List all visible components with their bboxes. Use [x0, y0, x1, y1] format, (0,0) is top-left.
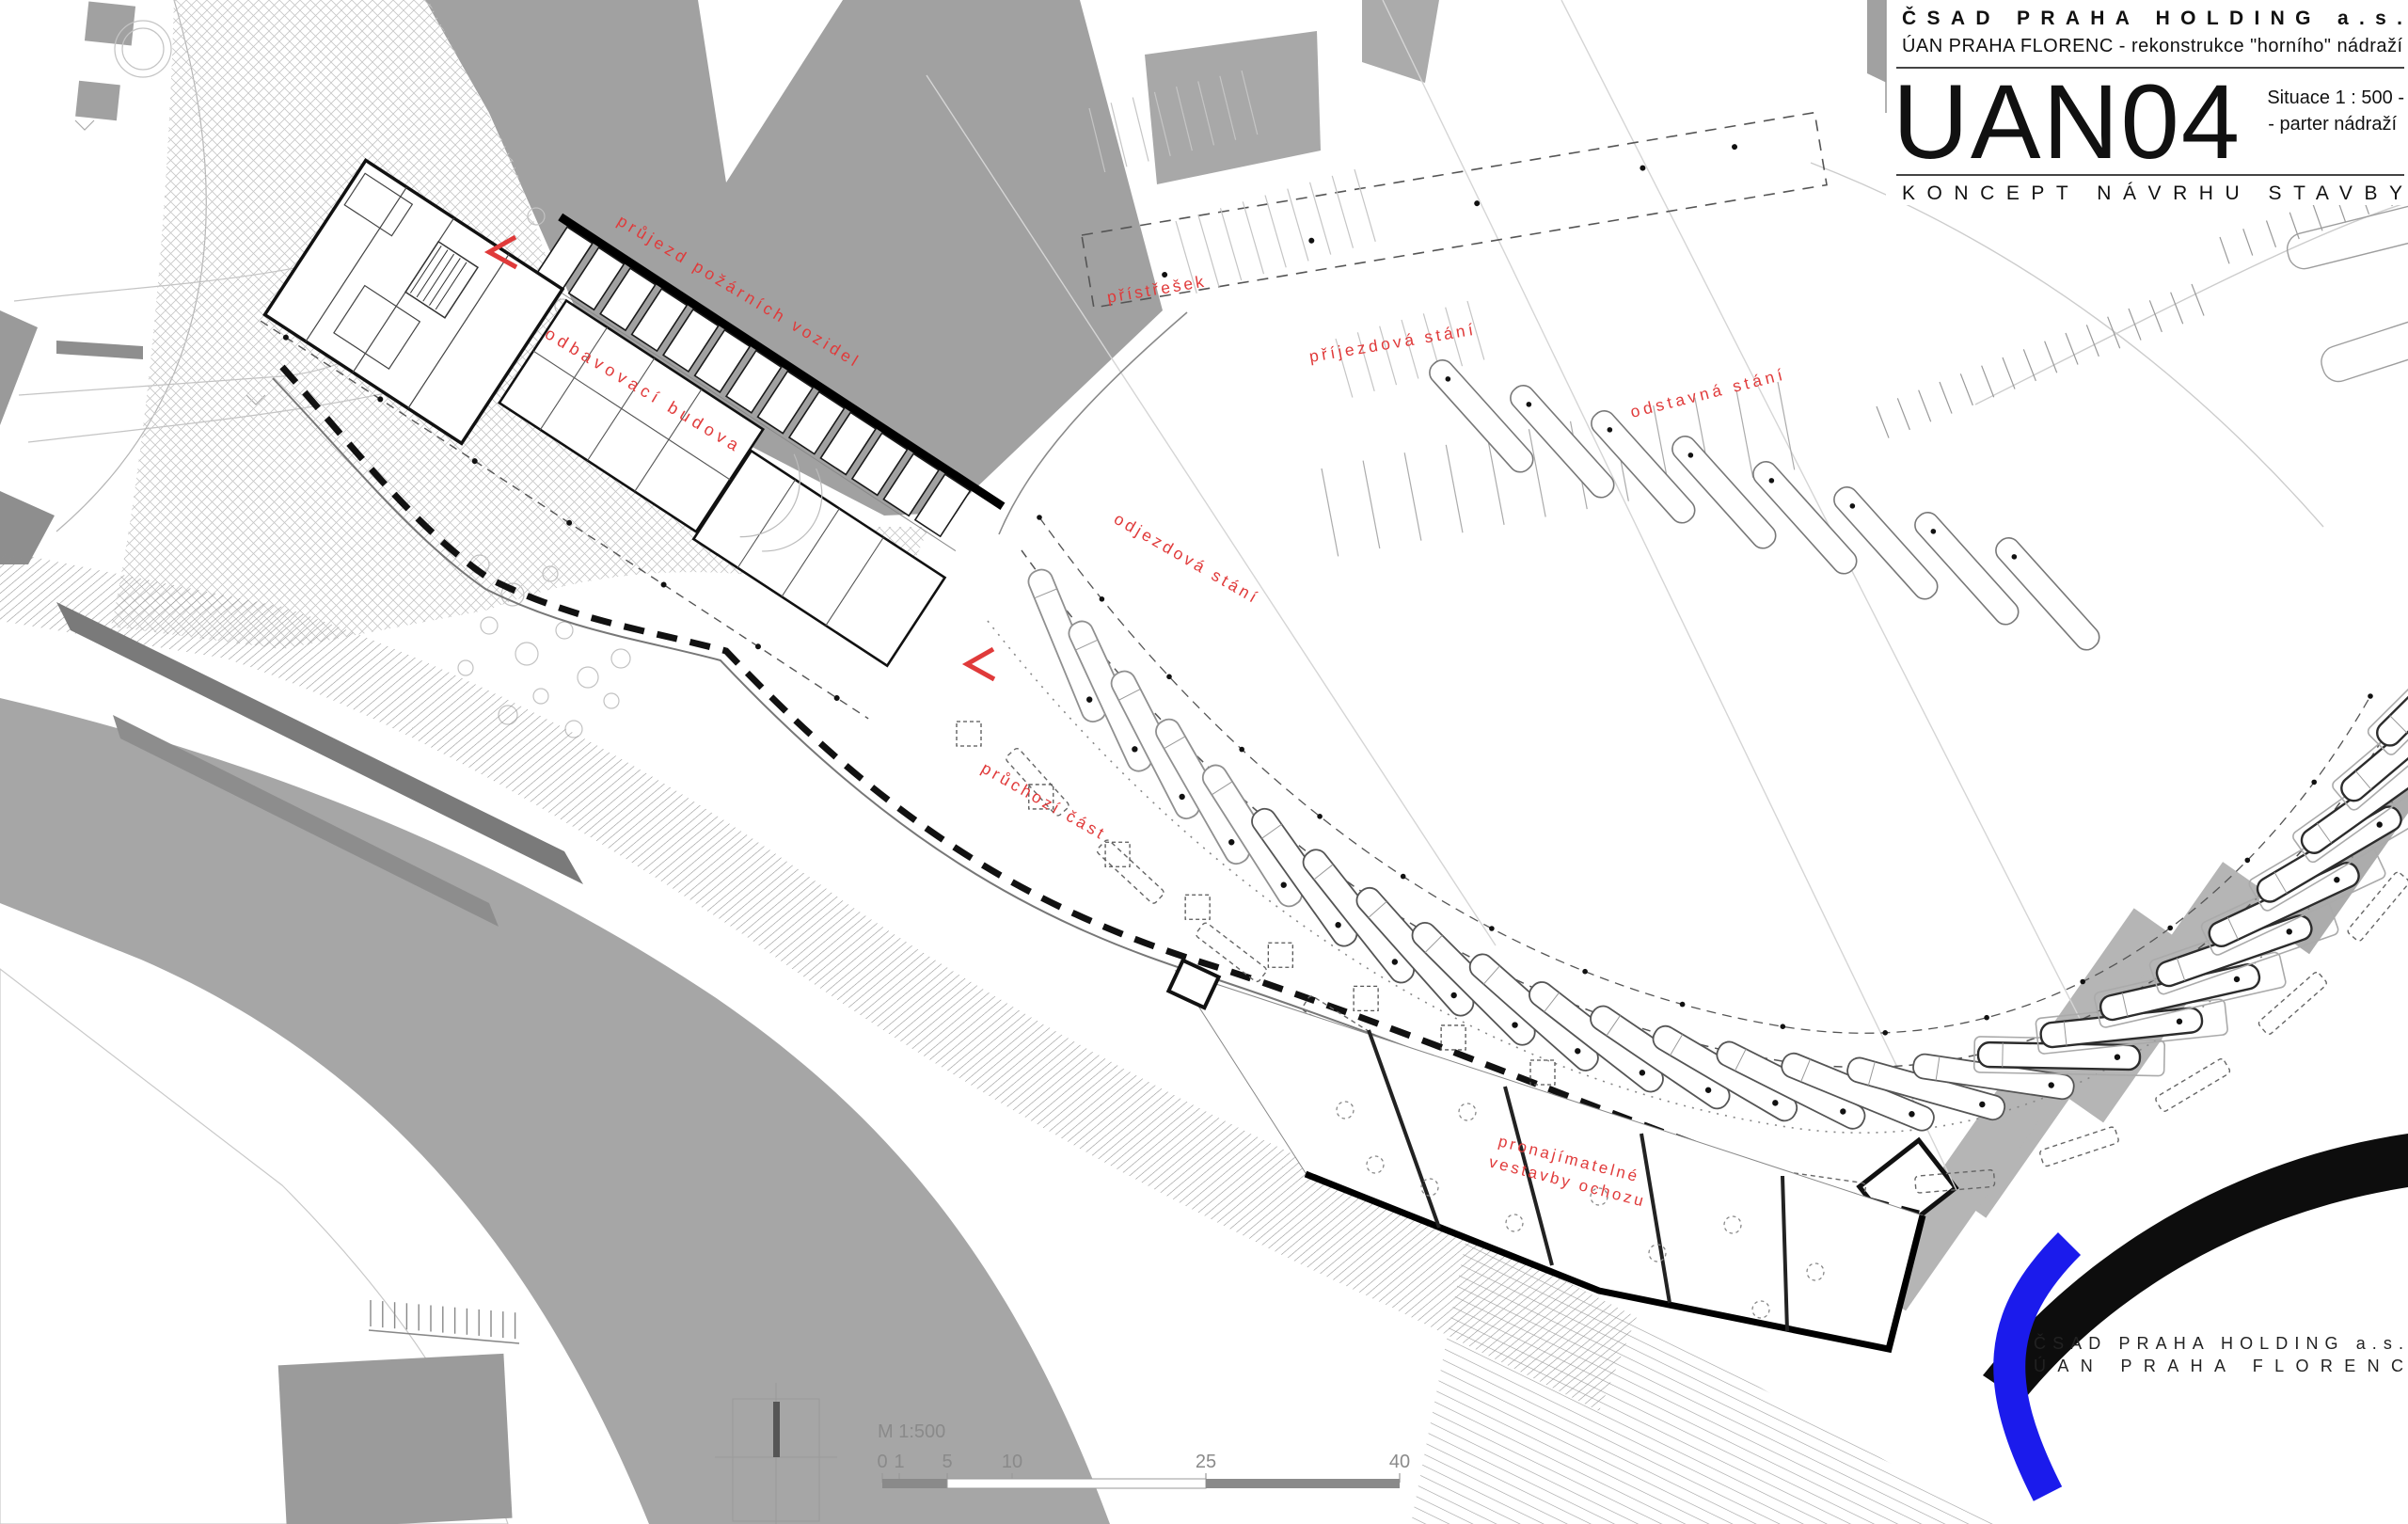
canopy-column-dot [2080, 979, 2085, 985]
separator-line [2129, 309, 2141, 341]
separator-line [1960, 373, 1972, 405]
separator-line [2192, 284, 2204, 316]
bench-mark [75, 120, 94, 130]
logo-site: ÚAN PRAHA FLORENC [2034, 1356, 2403, 1375]
building-block [85, 2, 135, 46]
separator-line [2066, 333, 2078, 365]
separator-line [1243, 201, 1263, 274]
dashed-stand [2039, 1126, 2119, 1167]
title-project: ÚAN PRAHA FLORENC - rekonstrukce "horníh… [1902, 35, 2402, 56]
canopy-column-dot [2167, 926, 2173, 931]
separator-line [1322, 468, 1339, 556]
scale-tick-label: 25 [1196, 1452, 1216, 1472]
dashed-stand [1096, 838, 1165, 904]
canopy-column-dot [1239, 747, 1244, 753]
building-block [0, 310, 38, 425]
fountain-circle [115, 21, 171, 77]
logo-block: ČSAD PRAHA HOLDING a.s. ÚAN PRAHA FLOREN… [1983, 1134, 2408, 1494]
label-layover-stands: odstavná stání [1628, 364, 1788, 421]
layover-stall [1910, 508, 2023, 629]
building-block [75, 81, 120, 120]
layover-stall [1830, 483, 1942, 604]
separator-line [1736, 389, 1753, 477]
separator-line [1940, 382, 1952, 414]
bus-stall [2366, 597, 2408, 756]
tree-circle [533, 689, 548, 704]
canopy-column-dot [1680, 1002, 1686, 1008]
canopy-column-dot [1037, 515, 1042, 520]
building-block [278, 1354, 513, 1524]
separator-line [1877, 406, 1889, 438]
column-base [1185, 895, 1210, 919]
canopy-column-dot [1582, 969, 1588, 975]
separator-line [1332, 176, 1353, 248]
separator-line [1982, 366, 1994, 398]
tree-circle [611, 649, 630, 668]
column-base [957, 722, 981, 746]
tree-circle [578, 667, 598, 688]
separator-line [2023, 349, 2036, 381]
separator-line [2045, 341, 2057, 373]
canopy-column-dot [1166, 675, 1172, 680]
building-block [1145, 31, 1321, 184]
separator-line [1897, 398, 1909, 430]
separator-line [1778, 382, 1795, 469]
separator-line [2313, 204, 2322, 230]
scale-tick-label: 1 [894, 1452, 904, 1472]
tree-circle [604, 693, 619, 708]
separator-line [2003, 357, 2015, 389]
column-base [1268, 943, 1292, 967]
building-block [1362, 0, 1439, 83]
canopy-column-dot [1401, 874, 1406, 880]
label-walkthrough: průchozí část [978, 758, 1110, 844]
layover-stall [1749, 457, 1861, 579]
layover-stall [1668, 432, 1781, 553]
separator-line [2171, 293, 2183, 325]
layover-stall [1425, 356, 1538, 477]
north-symbol [715, 1383, 837, 1524]
separator-line [1363, 461, 1380, 548]
scale-label: M 1:500 [878, 1421, 945, 1442]
fountain-circle-inner [122, 28, 164, 70]
canopy-column-dot [1489, 926, 1495, 931]
separator-line [1310, 183, 1331, 255]
layover-stall [1587, 406, 1700, 528]
tree-circle [515, 643, 538, 665]
canopy-column-dot [1882, 1030, 1888, 1036]
tree-circle [481, 617, 498, 634]
canopy-column-dot [1317, 814, 1323, 819]
separator-line [1446, 445, 1463, 532]
label-arrival-stands: příjezdová stání [1307, 320, 1477, 366]
label-departure-stands: odjezdová stání [1111, 509, 1263, 608]
building-block [56, 341, 143, 359]
dashed-stand [2154, 1057, 2230, 1112]
separator-line [1221, 208, 1242, 280]
separator-line [2267, 221, 2276, 247]
tree-circle [458, 660, 473, 675]
separator-line [2243, 229, 2253, 255]
column-base [1105, 842, 1130, 866]
layover-stall [1991, 533, 2104, 655]
site-plan-canvas: průjezd požárních vozidel odbavovací bud… [0, 0, 2408, 1524]
title-block: ČSAD PRAHA HOLDING a.s. ÚAN PRAHA FLOREN… [1886, 0, 2408, 205]
canopy-column-dot [1100, 596, 1105, 602]
separator-line [1265, 196, 1286, 268]
scale-tick-label: 10 [1002, 1452, 1022, 1472]
scale-tick-label: 5 [942, 1452, 952, 1472]
entrance-arrow [967, 649, 994, 679]
tree-circle [556, 622, 573, 639]
canopy-column-dot [2368, 693, 2373, 699]
separator-line [1354, 169, 1375, 242]
separator-line [2086, 325, 2099, 357]
drawing-code: UAN04 [1893, 63, 2242, 181]
column-base [1441, 1025, 1465, 1050]
layover-stall [1506, 381, 1619, 502]
logo-company: ČSAD PRAHA HOLDING a.s. [2034, 1333, 2403, 1353]
column-base [1354, 986, 1378, 1010]
separator-line [1133, 98, 1149, 162]
separator-line [1529, 429, 1545, 516]
scale-tick-label: 40 [1389, 1452, 1410, 1472]
canopy-column-dot [1984, 1015, 1989, 1021]
scale-note-2: - parter nádraží [2268, 114, 2397, 135]
separator-line [1919, 390, 1931, 422]
separator-line [2220, 237, 2229, 263]
scale-tick-label: 0 [877, 1452, 887, 1472]
canopy-column-dot [1781, 1024, 1786, 1029]
scale-note-1: Situace 1 : 500 - [2267, 87, 2404, 108]
canopy-column-dot [2245, 858, 2251, 864]
dashed-stand [2257, 971, 2328, 1036]
separator-line [1404, 452, 1421, 540]
canopy-column-dot [2311, 780, 2317, 786]
